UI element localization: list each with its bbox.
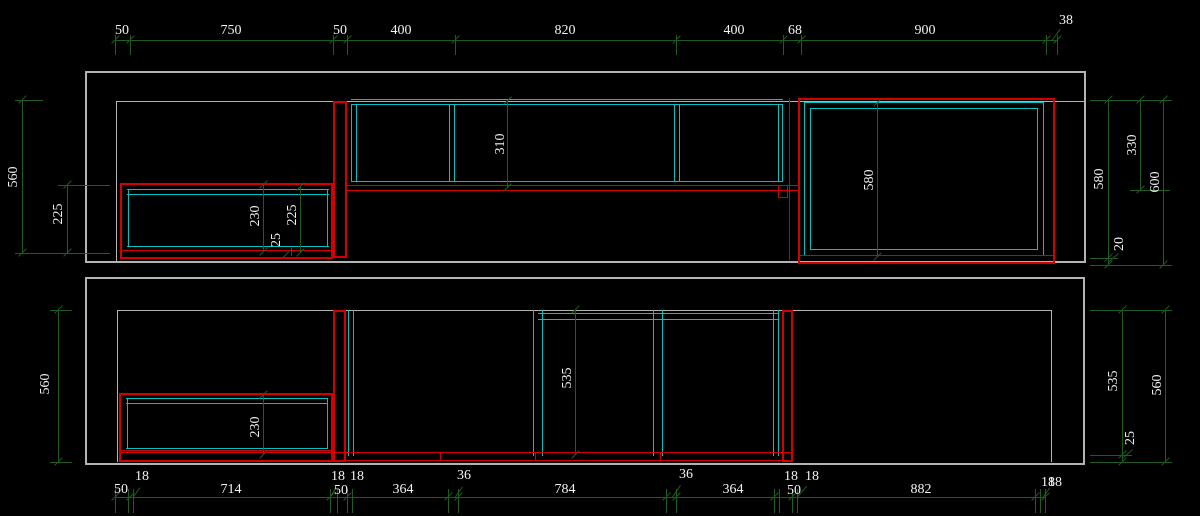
ext-line bbox=[774, 489, 775, 513]
dim-line bbox=[115, 40, 1057, 41]
dim-line bbox=[1165, 310, 1166, 462]
cabinet-shelf-line bbox=[126, 398, 328, 399]
ext-line bbox=[676, 489, 677, 513]
divider-line bbox=[789, 98, 790, 260]
base-line bbox=[119, 460, 793, 461]
dim-label-25: 25 bbox=[1124, 431, 1138, 445]
dim-label-230: 230 bbox=[249, 206, 263, 227]
dim-label-50: 50 bbox=[333, 24, 347, 38]
cabinet-base-line bbox=[800, 255, 1053, 256]
dim-label-900: 900 bbox=[915, 24, 936, 38]
ext-line bbox=[448, 489, 449, 513]
dim-label-882: 882 bbox=[911, 483, 932, 497]
ext-line bbox=[128, 489, 129, 513]
dim-line bbox=[58, 310, 59, 462]
cabinet-line bbox=[327, 189, 328, 247]
counter-line bbox=[347, 185, 800, 186]
divider-panel bbox=[782, 310, 793, 462]
cad-elevation-drawing: 50 750 50 400 820 400 68 900 38 bbox=[0, 0, 1200, 516]
dim-line bbox=[22, 100, 23, 253]
tall-section-top bbox=[538, 319, 778, 320]
dim-label-36: 36 bbox=[679, 468, 693, 482]
dim-label-750: 750 bbox=[221, 24, 242, 38]
tall-section-divider bbox=[653, 310, 654, 456]
wall-cabinet-divider bbox=[679, 104, 680, 182]
ext-line bbox=[666, 489, 667, 513]
wall-cabinet-divider bbox=[674, 104, 675, 182]
cabinet-shelf-line bbox=[126, 403, 328, 404]
dim-label-36: 36 bbox=[457, 469, 471, 483]
divider-panel bbox=[333, 101, 347, 258]
interior-wall-line bbox=[116, 101, 117, 261]
interior-wall-line bbox=[1051, 310, 1052, 462]
dim-line bbox=[300, 187, 301, 253]
dim-line bbox=[115, 497, 1045, 498]
divider-panel bbox=[333, 310, 346, 462]
dim-label-535: 535 bbox=[1107, 371, 1121, 392]
wall-cabinet-top bbox=[351, 99, 783, 100]
dim-label-714: 714 bbox=[221, 483, 242, 497]
cabinet-shelf-line bbox=[127, 189, 329, 190]
cabinet-line bbox=[128, 189, 129, 247]
dim-label-560: 560 bbox=[1151, 375, 1165, 396]
dim-line bbox=[1140, 100, 1141, 190]
ext-line bbox=[1090, 462, 1172, 463]
ext-line bbox=[352, 489, 353, 513]
wall-cabinet-divider bbox=[449, 104, 450, 182]
tall-section-divider bbox=[533, 310, 534, 456]
dim-label-230: 230 bbox=[249, 417, 263, 438]
interior-wall-line bbox=[117, 310, 118, 462]
ext-line bbox=[50, 462, 72, 463]
wall-cabinet-side bbox=[356, 104, 357, 182]
tall-section-side bbox=[353, 310, 354, 456]
cabinet-line bbox=[126, 448, 328, 449]
dim-label-820: 820 bbox=[555, 24, 576, 38]
base-joint bbox=[660, 452, 661, 461]
dim-line bbox=[263, 395, 264, 455]
tall-section-divider bbox=[662, 310, 663, 456]
wall-cabinet-top bbox=[351, 104, 783, 105]
ext-line bbox=[50, 310, 72, 311]
dim-label-560: 560 bbox=[39, 374, 53, 395]
cabinet-line bbox=[127, 398, 128, 449]
wall-cabinet-side bbox=[351, 104, 352, 182]
dim-label-330: 330 bbox=[1126, 135, 1140, 156]
dim-label-225: 225 bbox=[52, 204, 66, 225]
dim-label-18: 18 bbox=[331, 470, 345, 484]
dim-label-25: 25 bbox=[270, 233, 284, 247]
dim-label-600: 600 bbox=[1149, 172, 1163, 193]
counter-step bbox=[778, 185, 788, 198]
dim-line bbox=[575, 310, 576, 455]
base-line bbox=[119, 452, 793, 453]
cabinet-shelf-line bbox=[127, 194, 329, 195]
ext-line bbox=[1035, 489, 1036, 513]
dim-line bbox=[67, 185, 68, 253]
dim-label-400: 400 bbox=[391, 24, 412, 38]
dim-label-560: 560 bbox=[7, 167, 21, 188]
dim-label-535: 535 bbox=[561, 368, 575, 389]
cabinet-line bbox=[119, 450, 331, 451]
dim-label-364: 364 bbox=[723, 483, 744, 497]
tall-section-side bbox=[348, 310, 349, 456]
base-joint bbox=[535, 452, 536, 461]
dim-label-50: 50 bbox=[114, 483, 128, 497]
tall-section-divider bbox=[542, 310, 543, 456]
dim-label-50: 50 bbox=[334, 484, 348, 498]
dim-label-784: 784 bbox=[555, 483, 576, 497]
dim-label-18: 18 bbox=[784, 470, 798, 484]
ext-line bbox=[779, 489, 780, 513]
wall-cabinet-side bbox=[778, 104, 779, 182]
wall-cabinet-bottom bbox=[351, 181, 783, 182]
tall-section-side bbox=[773, 310, 774, 456]
tall-section-top bbox=[538, 313, 778, 314]
dim-label-20: 20 bbox=[1113, 237, 1127, 251]
dim-label-18: 18 bbox=[350, 470, 364, 484]
dim-line bbox=[1163, 100, 1164, 265]
dim-line bbox=[1108, 100, 1109, 265]
ext-line bbox=[1040, 489, 1041, 513]
dim-line bbox=[877, 103, 878, 257]
wall-cabinet-divider bbox=[454, 104, 455, 182]
dim-label-310: 310 bbox=[494, 134, 508, 155]
ext-line bbox=[15, 253, 110, 254]
dim-line bbox=[263, 185, 264, 252]
dim-label-38: 38 bbox=[1059, 14, 1073, 28]
dim-label-68: 68 bbox=[788, 24, 802, 38]
dim-label-580: 580 bbox=[863, 170, 877, 191]
dim-label-18: 18 bbox=[135, 470, 149, 484]
tall-section-side bbox=[778, 310, 779, 456]
tall-cabinet-inner bbox=[810, 108, 1038, 250]
dim-label-18: 18 bbox=[805, 470, 819, 484]
ext-line bbox=[1090, 310, 1172, 311]
dim-label-364: 364 bbox=[393, 483, 414, 497]
dim-label-580: 580 bbox=[1093, 169, 1107, 190]
counter-line bbox=[347, 190, 800, 191]
wall-cabinet-side bbox=[782, 104, 783, 182]
dim-label-50: 50 bbox=[115, 24, 129, 38]
cabinet-line bbox=[327, 398, 328, 449]
cabinet-line bbox=[127, 246, 329, 247]
dim-label-225: 225 bbox=[286, 205, 300, 226]
dim-label-18: 18 bbox=[1048, 476, 1062, 490]
interior-wall-line bbox=[117, 310, 1051, 311]
dim-label-400: 400 bbox=[724, 24, 745, 38]
base-joint bbox=[440, 452, 441, 461]
